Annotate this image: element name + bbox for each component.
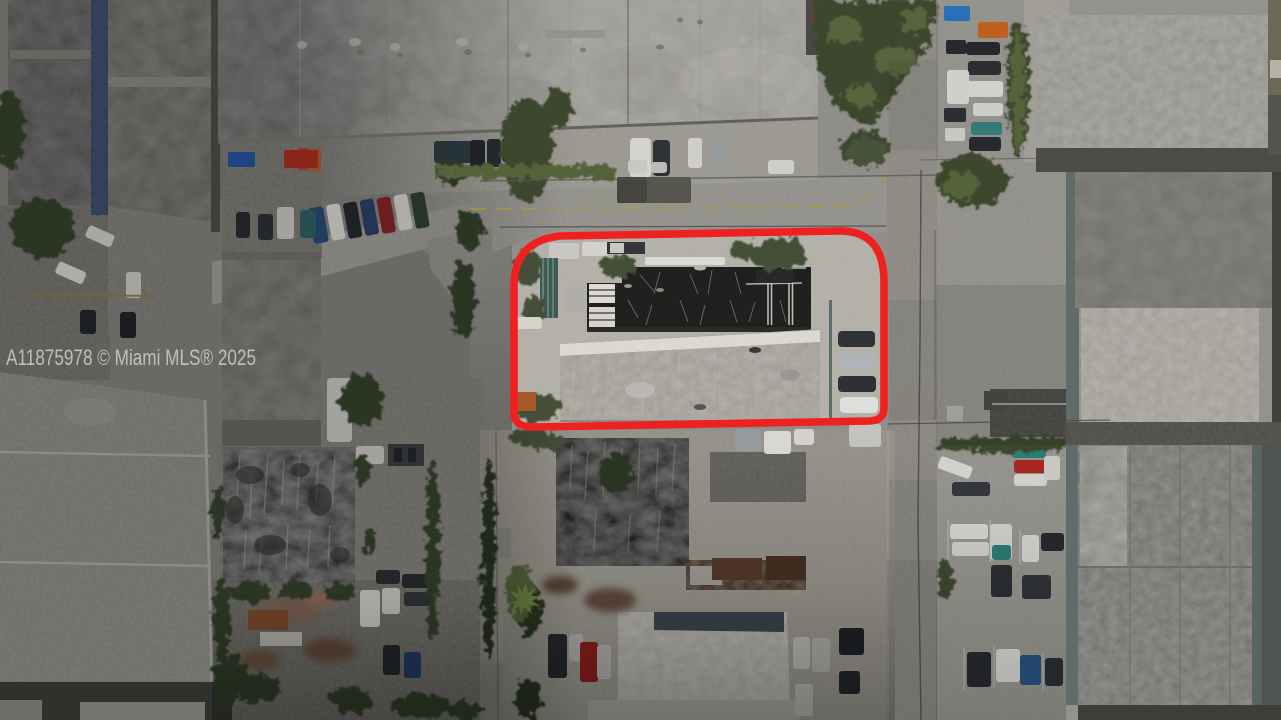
- svg-text:A11875978 © Miami MLS® 2025: A11875978 © Miami MLS® 2025: [6, 345, 256, 370]
